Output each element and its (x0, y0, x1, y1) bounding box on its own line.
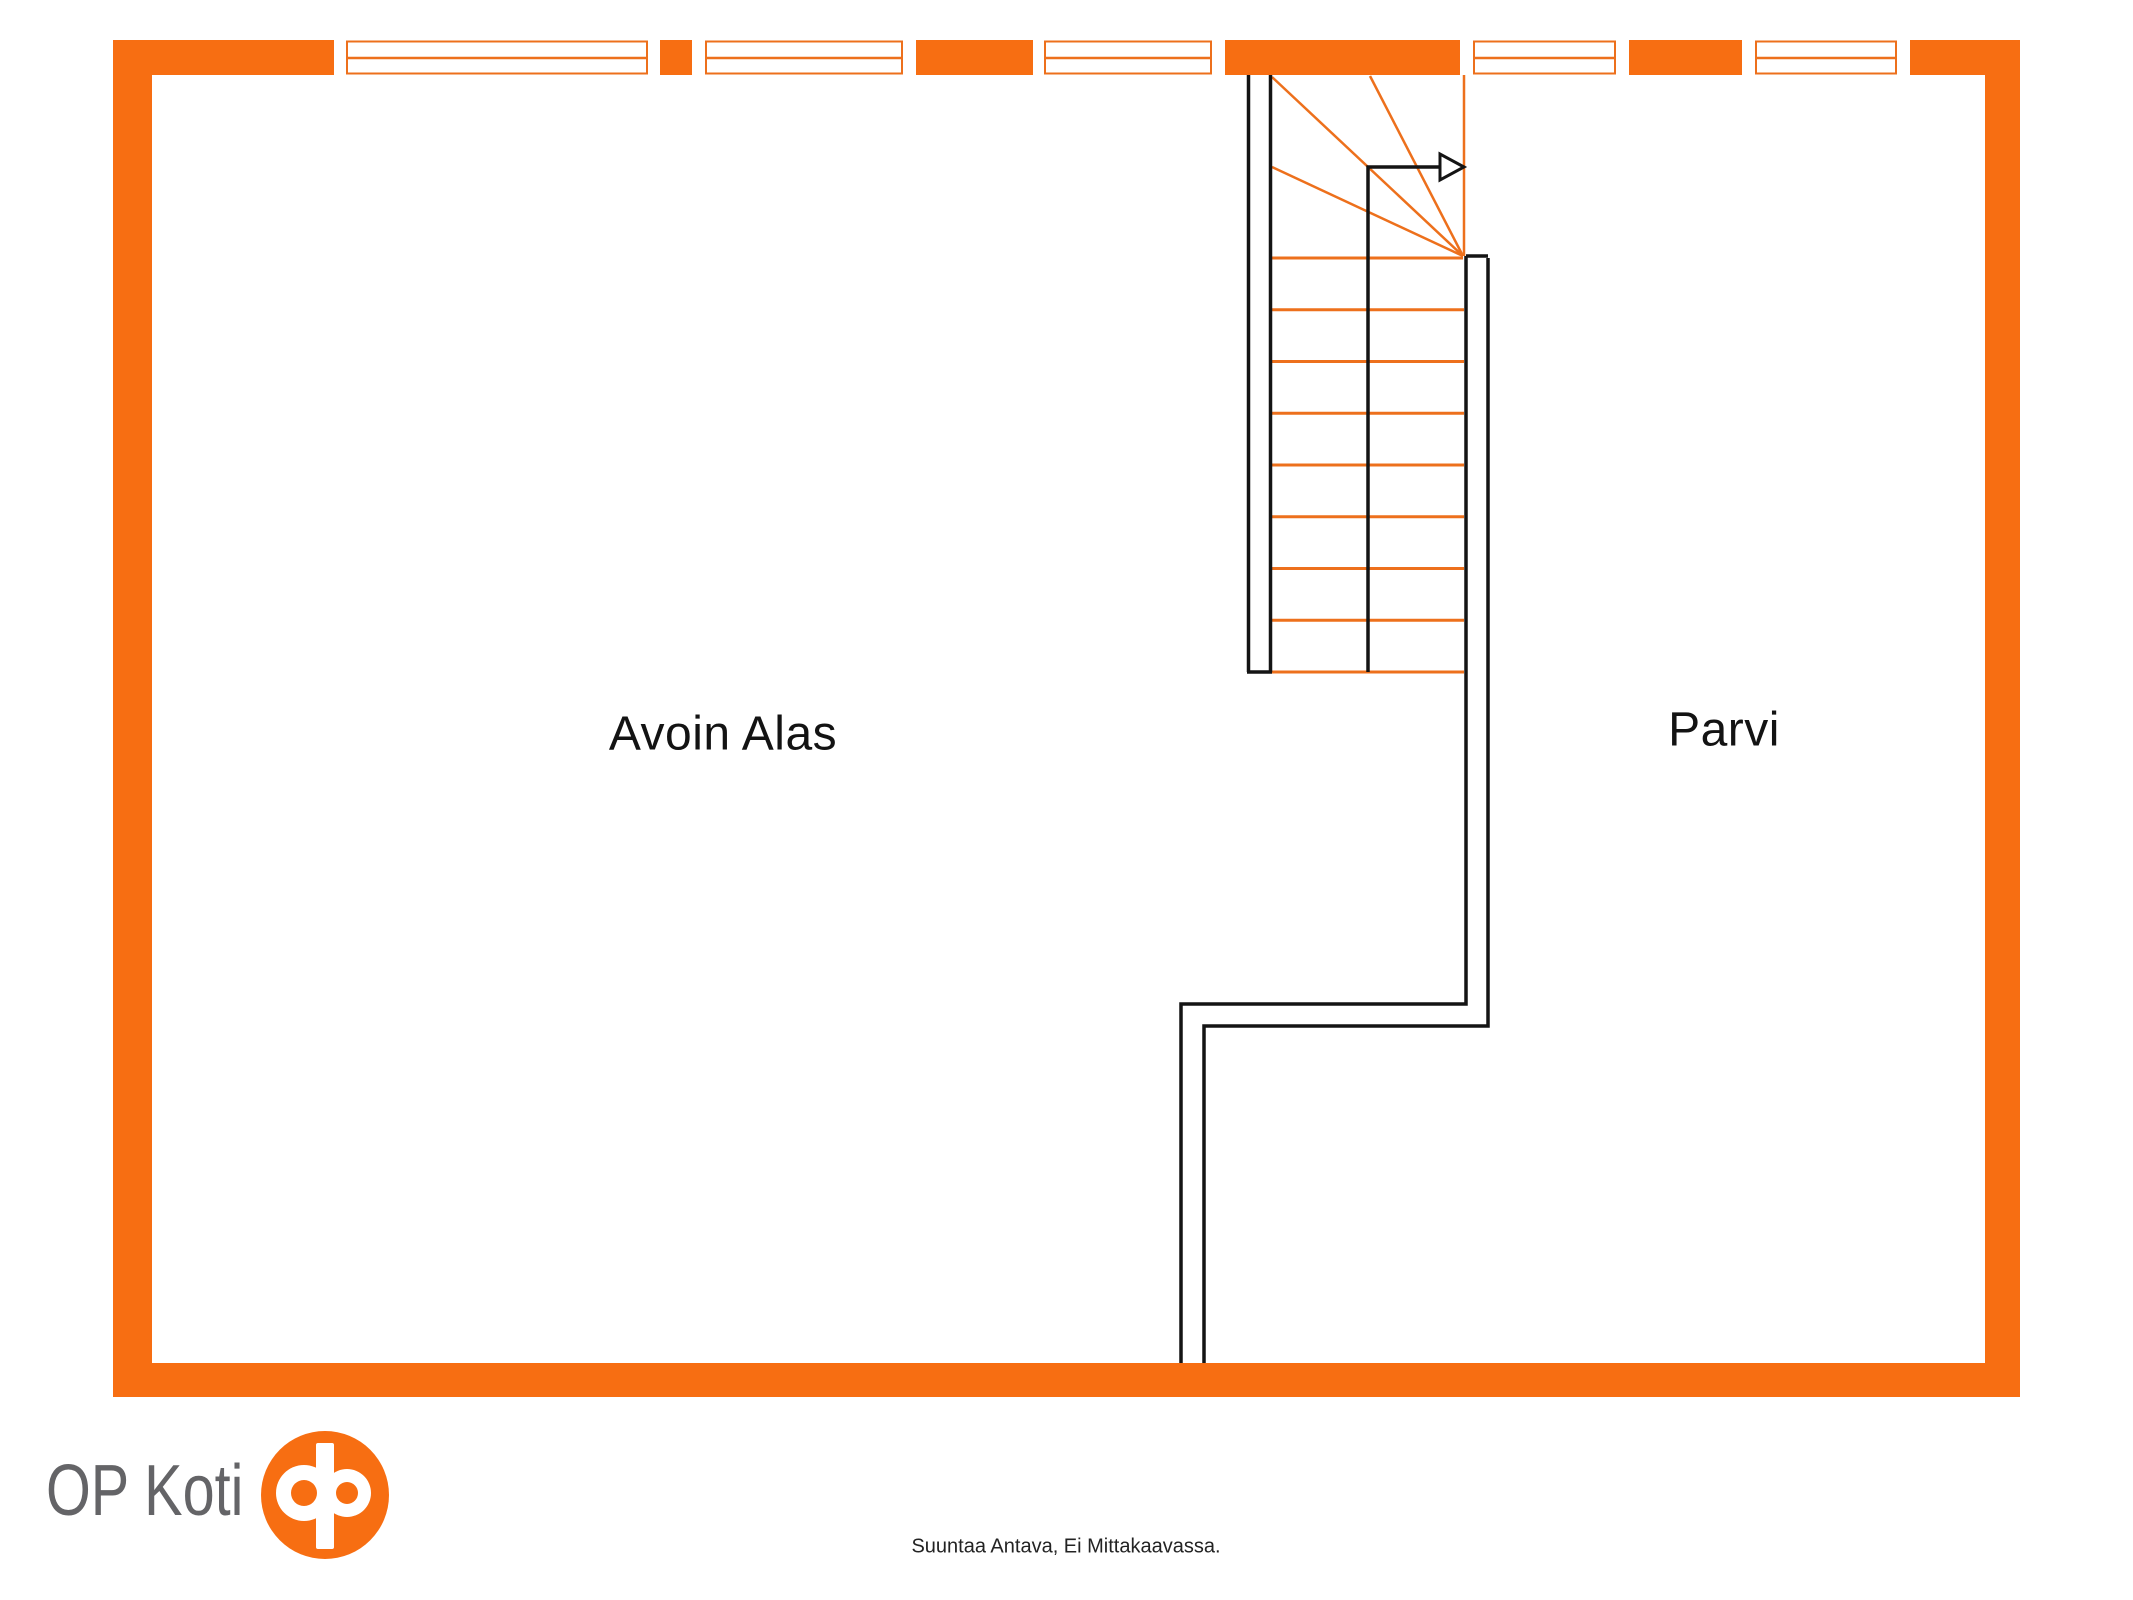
window-5 (1742, 40, 1910, 75)
window-1 (334, 40, 660, 75)
floor-plan-page: Avoin Alas Parvi OP Koti Suuntaa Antava,… (0, 0, 2133, 1600)
floor-plan-drawing (0, 0, 2133, 1600)
disclaimer-caption: Suuntaa Antava, Ei Mittakaavassa. (911, 1536, 1220, 1559)
brand-wordmark: OP Koti (46, 1419, 243, 1564)
stairwell-left-wall (1247, 75, 1272, 672)
op-koti-logo: OP Koti (40, 1425, 400, 1570)
room-label-parvi: Parvi (1668, 703, 1780, 758)
window-2 (692, 40, 916, 75)
stair-direction-arrow-icon (1440, 154, 1464, 180)
window-3 (1033, 40, 1225, 75)
op-group-icon (258, 1428, 392, 1568)
window-4 (1460, 40, 1629, 75)
parvi-partition-wall (1181, 256, 1488, 1363)
room-label-avoin-alas: Avoin Alas (609, 707, 837, 762)
staircase (1247, 75, 1464, 672)
